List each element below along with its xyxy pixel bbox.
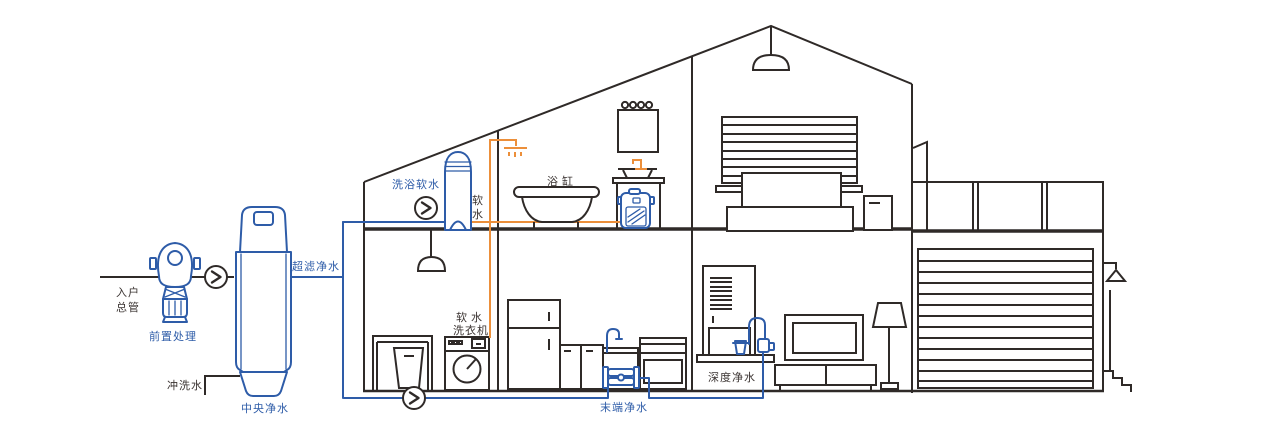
side-steps <box>1104 371 1131 392</box>
shower-head-icon <box>504 148 527 157</box>
bedroom <box>716 26 892 231</box>
label-deep-purification: 深度净水 <box>708 370 756 384</box>
label-terminal-purification: 末端净水 <box>600 400 648 414</box>
label-flush-water: 冲洗水 <box>167 378 203 392</box>
nightstand <box>864 196 892 230</box>
terminal-purifier-unit <box>603 367 639 388</box>
flush-drain-pipe <box>205 376 240 395</box>
label-bath-softening: 洗浴软水 <box>392 177 440 191</box>
basin-faucet-icon <box>633 160 647 169</box>
bed-headboard <box>742 173 841 207</box>
television <box>785 315 863 360</box>
label-ultrafiltration: 超滤净水 <box>292 259 340 273</box>
garage-door-slats <box>918 261 1093 381</box>
garage-door-frame <box>918 249 1093 388</box>
label-pre-treatment: 前置处理 <box>149 329 197 343</box>
wash-basin <box>618 169 657 178</box>
house-water-system-diagram: 入户 总管 前置处理 冲洗水 中央净水 超滤净水 洗浴软水 软 水 浴缸 软水 … <box>0 0 1280 434</box>
washing-machine <box>445 337 489 390</box>
laundry-basket <box>394 348 423 388</box>
pre-treatment-filter <box>150 243 200 322</box>
bathtub <box>514 187 599 230</box>
label-inlet-main-2: 总管 <box>116 300 140 314</box>
blind-slats <box>722 125 857 176</box>
deep-purifier-wall-unit <box>758 339 769 352</box>
label-bathtub: 浴缸 <box>547 174 577 188</box>
mirror-lights-icon <box>622 102 652 108</box>
roof-hatch <box>913 142 927 182</box>
pendant-lamp-icon <box>753 55 789 70</box>
diagram-canvas: 入户 总管 前置处理 冲洗水 中央净水 超滤净水 洗浴软水 软 水 浴缸 软水 … <box>0 0 1280 434</box>
cabinets <box>560 345 603 389</box>
oven <box>640 338 686 389</box>
floor-lamp-icon <box>873 303 906 389</box>
label-soft-water-v2: 水 <box>472 208 484 221</box>
kitchen <box>508 300 686 389</box>
tv-stand <box>775 365 876 390</box>
label-washer-1: 软水 <box>456 310 486 324</box>
vanity-counter <box>613 178 664 183</box>
deep-purifier-set <box>733 318 774 354</box>
bathtub-rim <box>514 187 599 197</box>
label-soft-water-v1: 软 <box>472 193 484 207</box>
laundry-room <box>373 229 489 390</box>
soft-water-vertical-pipe <box>490 140 516 338</box>
flow-arrow-icon <box>415 197 437 219</box>
wall-lamp-bracket <box>1103 263 1116 269</box>
label-inlet-main-1: 入户 <box>116 285 140 299</box>
refrigerator <box>508 300 560 389</box>
wall-lamp-icon <box>1107 270 1125 281</box>
laundry-sink-stand <box>373 336 432 390</box>
under-sink-softener-unit <box>618 189 654 228</box>
flow-arrow-icon <box>403 387 425 409</box>
mirror <box>618 110 658 152</box>
label-washer-2: 洗衣机 <box>453 323 489 337</box>
pendant-lamp-icon-2 <box>418 257 445 271</box>
bath-softener-tank <box>445 152 471 230</box>
garage <box>912 142 1131 392</box>
central-purifier-tank <box>236 207 291 396</box>
bed-base <box>727 207 853 231</box>
parapet-posts <box>927 182 1047 231</box>
label-central-purification: 中央净水 <box>241 401 289 415</box>
flow-arrow-icon <box>205 266 227 288</box>
